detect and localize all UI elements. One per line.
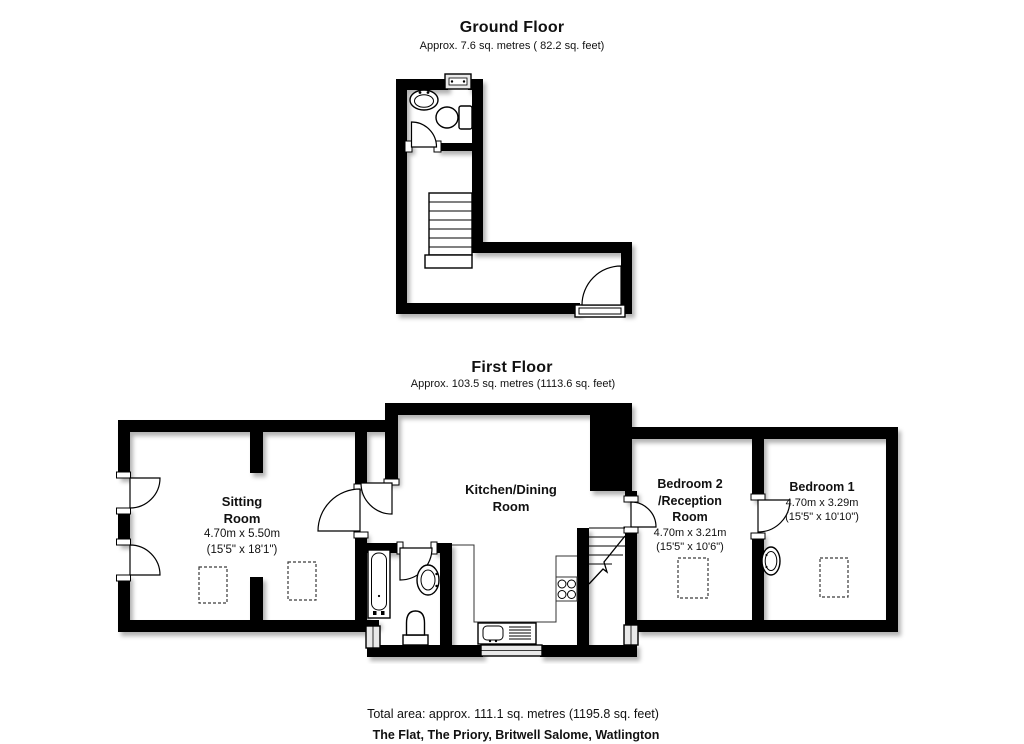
rooflight-dashed — [199, 567, 227, 603]
door-arc-sitting-hall — [318, 489, 360, 531]
toilet-icon — [403, 611, 428, 645]
room-name: Bedroom 1 — [785, 479, 859, 496]
door-jamb — [751, 533, 765, 539]
room-name: Room — [204, 510, 280, 527]
bedroom2-label: Bedroom 2 /Reception Room 4.70m x 3.21m … — [654, 476, 727, 555]
staircase — [589, 528, 625, 584]
entrance-door — [575, 266, 625, 317]
kitchen-sink-icon — [478, 623, 536, 644]
kitchen-dining-label: Kitchen/Dining Room — [465, 481, 557, 515]
first-floor-subtitle: Approx. 103.5 sq. metres (1113.6 sq. fee… — [411, 378, 615, 390]
sink-icon — [410, 90, 438, 110]
address-text: The Flat, The Priory, Britwell Salome, W… — [373, 728, 660, 742]
room-dims-imperial: (15'5" x 10'6") — [654, 540, 727, 555]
staircase — [425, 193, 472, 268]
door-jamb — [751, 494, 765, 500]
rooflight-dashed — [288, 562, 316, 600]
rooflight-dashed — [820, 558, 848, 597]
room-dims-metric: 4.70m x 3.29m — [785, 496, 859, 511]
door-arc-sitting-lower — [130, 545, 160, 575]
door-jamb — [117, 539, 131, 545]
door-jamb — [117, 472, 131, 478]
room-dims-metric: 4.70m x 5.50m — [204, 527, 280, 543]
bedroom1-label: Bedroom 1 4.70m x 3.29m (15'5" x 10'10") — [785, 479, 859, 525]
ground-floor-subtitle: Approx. 7.6 sq. metres ( 82.2 sq. feet) — [420, 40, 605, 52]
first-floor-title: First Floor — [471, 359, 552, 377]
floorplan-page: Ground Floor Approx. 7.6 sq. metres ( 82… — [0, 0, 1024, 744]
door-arc-bedroom2 — [631, 502, 656, 527]
door-jamb — [624, 496, 638, 502]
room-dims-imperial: (15'5" x 18'1") — [204, 543, 280, 559]
hob-icon — [556, 577, 577, 601]
room-dims-imperial: (15'5" x 10'10") — [785, 510, 859, 525]
sink-icon — [417, 565, 439, 595]
room-name: Kitchen/Dining — [465, 481, 557, 498]
window — [445, 74, 471, 89]
door-arc-wc — [412, 122, 437, 147]
entrance-door-arc — [582, 266, 621, 305]
total-area-text: Total area: approx. 111.1 sq. metres (11… — [367, 707, 659, 721]
room-name: Bedroom 2 — [654, 476, 727, 493]
ground-floor-title: Ground Floor — [460, 19, 565, 37]
sitting-room-label: Sitting Room 4.70m x 5.50m (15'5" x 18'1… — [204, 493, 280, 558]
door-jamb — [354, 532, 368, 538]
room-name: Room — [654, 509, 727, 526]
room-name: Room — [465, 498, 557, 515]
room-name: Sitting — [204, 493, 280, 510]
door-jamb — [117, 575, 131, 581]
window — [624, 625, 638, 645]
room-name: /Reception — [654, 493, 727, 510]
bathtub-icon — [368, 550, 390, 618]
rooflight-dashed — [678, 558, 708, 598]
window — [481, 645, 542, 656]
toilet-icon — [436, 106, 472, 129]
door-arc-kitchen — [361, 483, 392, 514]
door-jamb — [624, 527, 638, 533]
room-dims-metric: 4.70m x 3.21m — [654, 526, 727, 541]
sink-icon — [762, 547, 780, 575]
window — [366, 626, 380, 648]
ground-floor-plan — [385, 70, 645, 325]
door-jamb — [117, 508, 131, 514]
door-arc-sitting-upper — [130, 478, 160, 508]
